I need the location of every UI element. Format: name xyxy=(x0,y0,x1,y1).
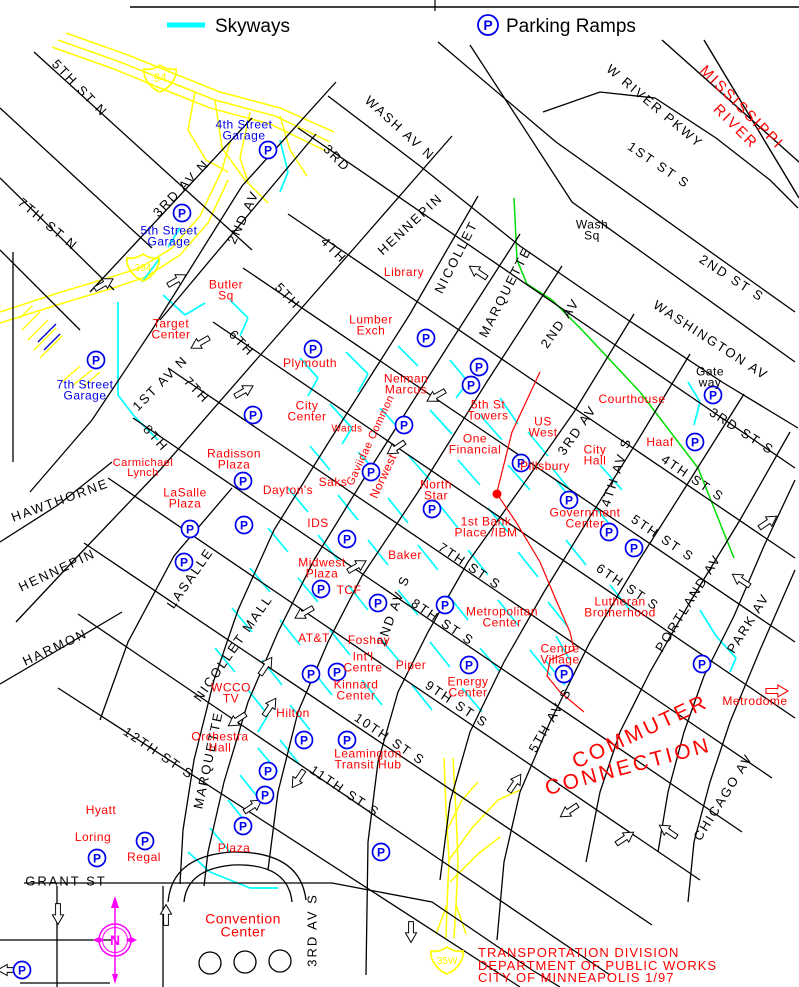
place-label: Courthouse xyxy=(598,392,665,406)
place-label: LutheranBrotherhood xyxy=(584,595,656,620)
parking-ramp-icon: P xyxy=(235,818,252,835)
place-label: Plaza xyxy=(218,841,251,855)
svg-text:N: N xyxy=(110,932,120,948)
skyway-segment xyxy=(458,460,480,485)
svg-text:P: P xyxy=(709,389,717,403)
parking-ramp-icon: P xyxy=(626,540,643,557)
place-label: 5th StTowers xyxy=(467,398,508,423)
skyway-segment xyxy=(430,642,450,667)
svg-text:94: 94 xyxy=(153,71,167,85)
place-label: MidwestPlaza xyxy=(298,556,346,581)
street-label: W RIVER PKWY xyxy=(604,61,707,151)
place-label: OneFinancial xyxy=(449,432,502,457)
freeway-line xyxy=(58,40,330,142)
parking-ramp-icon: P xyxy=(463,377,480,394)
place-label: Loring xyxy=(75,830,111,844)
street-label: 3RD ST S xyxy=(707,405,777,458)
one-way-arrow xyxy=(466,262,490,283)
map-canvas: 9439435W PPPPPPPPPPPPPPPPPPPPPPPPPPPPPPP… xyxy=(0,0,799,987)
parking-ramp-icon: P xyxy=(182,521,199,538)
street-line xyxy=(586,432,790,862)
highway-shield: 394 xyxy=(127,254,159,281)
parking-ramp-icon: P xyxy=(137,833,154,850)
street-label: NICOLLET xyxy=(431,218,480,296)
skyway-segment xyxy=(730,658,736,672)
street-label: 6TH xyxy=(226,327,258,359)
one-way-arrow xyxy=(52,904,63,925)
one-way-arrow xyxy=(613,828,637,849)
place-label: Regal xyxy=(127,850,161,864)
freeway-line xyxy=(447,782,478,830)
parking-ramp-icon: P xyxy=(461,657,478,674)
parking-ramp-icon: P xyxy=(245,407,262,424)
svg-text:P: P xyxy=(400,419,408,433)
street-label: 4TH ST S xyxy=(659,451,728,504)
parking-ramp-icon: P xyxy=(556,666,573,683)
one-way-arrow xyxy=(505,771,526,795)
parking-ramp-icon: P xyxy=(373,844,390,861)
freeway-line xyxy=(436,905,447,934)
parking-ramp-icon: P xyxy=(260,142,277,159)
compass-rose: N xyxy=(93,896,137,984)
downtown-skyway-map: 9439435W PPPPPPPPPPPPPPPPPPPPPPPPPPPPPPP… xyxy=(0,0,799,987)
parking-ramp-icon: P xyxy=(257,787,274,804)
parking-ramp-icon: P xyxy=(174,205,191,222)
place-label: RadissonPlaza xyxy=(207,447,261,472)
place-label: LeamingtonTransit Hub xyxy=(334,747,402,772)
street-label: 8TH xyxy=(140,422,172,455)
place-label: MetropolitanCenter xyxy=(466,605,538,630)
svg-text:P: P xyxy=(261,789,269,803)
one-way-arrow xyxy=(160,905,171,926)
skyways-legend-label: Skyways xyxy=(215,16,290,37)
skyway-segment xyxy=(566,540,586,565)
place-label: CityCenter xyxy=(287,399,326,424)
parking-ramp-icon: P xyxy=(313,581,330,598)
convention-arc xyxy=(168,852,306,902)
hatch-line xyxy=(28,320,48,340)
street-label: WASH AV N xyxy=(362,93,438,164)
place-label: USWest xyxy=(528,415,557,440)
street-label: 12TH ST S xyxy=(121,724,197,782)
place-label: Baker xyxy=(388,548,422,562)
parking-legend-label: Parking Ramps xyxy=(506,16,636,37)
svg-text:P: P xyxy=(141,835,149,849)
compass-rose: N xyxy=(93,896,137,984)
skyway-segment xyxy=(280,140,288,172)
one-way-arrow xyxy=(188,333,212,353)
place-label: ConventionCenter xyxy=(205,910,281,939)
one-way-arrow xyxy=(288,767,309,791)
svg-text:P: P xyxy=(264,765,272,779)
svg-text:P: P xyxy=(317,583,325,597)
parking-ramp-icon: P xyxy=(305,341,322,358)
street-label: HARMON xyxy=(20,626,90,669)
skyway-segment xyxy=(346,352,368,374)
convention-dome xyxy=(234,951,256,973)
street-label: 2ND ST S xyxy=(697,252,767,305)
skyway-segment xyxy=(430,410,452,434)
svg-text:P: P xyxy=(93,852,101,866)
svg-text:35W: 35W xyxy=(437,956,458,967)
street-label: HENNEPIN xyxy=(374,190,445,258)
parking-ramp-icon: P xyxy=(418,330,435,347)
legend: Skyways P Parking Ramps xyxy=(130,0,799,37)
area-label: WashSq xyxy=(576,218,608,243)
parking-ramp-icon: P xyxy=(236,517,253,534)
svg-text:P: P xyxy=(422,332,430,346)
skyway-segment xyxy=(210,872,250,888)
svg-text:P: P xyxy=(178,207,186,221)
one-way-arrow xyxy=(345,556,369,576)
svg-text:P: P xyxy=(483,17,492,33)
place-label: Haaf xyxy=(646,435,674,449)
place-label: Piper xyxy=(396,658,427,672)
garage-label: 4th StreetGarage xyxy=(215,118,272,143)
street-label: 5TH xyxy=(272,280,304,312)
svg-text:P: P xyxy=(630,542,638,556)
street-label: 2ND AV xyxy=(224,188,262,246)
street-label: 3RD AV S xyxy=(305,893,320,967)
svg-text:P: P xyxy=(249,409,257,423)
svg-text:P: P xyxy=(180,556,188,570)
place-label: Wards xyxy=(331,424,362,435)
convention-dome xyxy=(199,952,221,974)
place-label: CityHall xyxy=(584,443,607,468)
parking-ramp-icon: P xyxy=(88,352,105,369)
street-label: PORTLAND AV xyxy=(652,552,724,655)
svg-text:P: P xyxy=(239,820,247,834)
place-label: Hyatt xyxy=(86,803,117,817)
svg-text:P: P xyxy=(240,519,248,533)
street-label: 5TH AV S xyxy=(526,685,575,755)
one-way-arrow xyxy=(405,922,416,943)
place-label: CarmichaelLynch xyxy=(113,457,174,479)
street-label: 4TH xyxy=(318,234,350,266)
svg-text:P: P xyxy=(18,964,26,978)
skyway-segment xyxy=(398,346,418,366)
parking-ramp-icon: P xyxy=(471,359,488,376)
place-label: CentreVillage xyxy=(540,642,579,667)
street-label: 5TH ST N xyxy=(49,56,111,119)
parking-ramp-icon: P xyxy=(694,656,711,673)
parking-legend-icon: P xyxy=(478,15,498,35)
parking-ramp-icon: P xyxy=(235,473,252,490)
place-label: TCF xyxy=(337,583,362,597)
svg-text:394: 394 xyxy=(135,263,152,274)
highway-shield: 35W xyxy=(431,947,463,974)
parking-ramp-icon: P xyxy=(303,666,320,683)
svg-text:P: P xyxy=(465,659,473,673)
street-label: MARQUETTE xyxy=(476,244,535,340)
place-label: Library xyxy=(384,265,424,279)
one-way-arrow xyxy=(424,386,448,406)
svg-text:P: P xyxy=(307,668,315,682)
one-way-arrow xyxy=(756,512,780,533)
svg-text:P: P xyxy=(377,846,385,860)
skyway-segment xyxy=(268,528,288,552)
street-label: CHICAGO AV xyxy=(690,751,756,844)
street-label: 7TH xyxy=(181,374,213,406)
parking-ramp-icon: P xyxy=(424,501,441,518)
svg-text:P: P xyxy=(441,599,449,613)
parking-ramp-icon: P xyxy=(260,763,277,780)
place-label: EnergyCenter xyxy=(447,675,488,700)
hatch-line xyxy=(20,306,32,318)
place-label: KinnardCenter xyxy=(334,678,379,703)
parking-ramp-icon: P xyxy=(370,595,387,612)
area-label: Gateway xyxy=(696,365,724,390)
place-label: LaSallePlaza xyxy=(163,486,207,511)
street-label: HAWTHORNE xyxy=(9,475,111,524)
skyway-segment xyxy=(258,715,268,732)
svg-text:P: P xyxy=(691,436,699,450)
street-label: 7TH ST N xyxy=(15,195,81,254)
street-label: 7TH ST S xyxy=(436,539,505,592)
garage-label: 7th StreetGarage xyxy=(56,378,113,403)
map-credits: TRANSPORTATION DIVISION DEPARTMENT OF PU… xyxy=(478,945,717,985)
svg-text:P: P xyxy=(186,523,194,537)
svg-text:P: P xyxy=(92,354,100,368)
parking-ramp-icon: P xyxy=(89,850,106,867)
place-label: AT&T xyxy=(298,631,330,645)
skyway-segment xyxy=(185,303,205,315)
svg-text:P: P xyxy=(475,361,483,375)
place-label: IDS xyxy=(307,516,329,530)
route-origin-dot xyxy=(493,490,502,499)
place-label: Foshay xyxy=(348,633,390,647)
street-label: GRANT ST xyxy=(25,874,107,889)
svg-text:P: P xyxy=(467,379,475,393)
svg-text:P: P xyxy=(343,734,351,748)
place-label: ButlerSq xyxy=(209,278,243,303)
hatch-line xyxy=(40,336,62,358)
place-label: 1st BankPlace /IBM xyxy=(454,515,517,540)
svg-text:P: P xyxy=(698,658,706,672)
place-label: LumberExch xyxy=(349,313,393,338)
garage-label: 5th StreetGarage xyxy=(140,224,197,249)
hatch-line xyxy=(44,334,60,350)
place-label: WCCOTV xyxy=(211,681,251,706)
svg-text:P: P xyxy=(374,597,382,611)
one-way-arrow xyxy=(557,801,581,822)
place-label: NorthStar xyxy=(420,478,452,503)
svg-text:P: P xyxy=(239,475,247,489)
street-label: 5TH ST S xyxy=(629,511,698,564)
svg-text:P: P xyxy=(428,503,436,517)
place-label: TargetCenter xyxy=(151,317,190,342)
parking-ramp-icon: P xyxy=(14,962,31,979)
svg-text:P: P xyxy=(309,343,317,357)
place-label: Saks xyxy=(319,475,348,489)
skyway-segment xyxy=(694,402,700,425)
parking-ramp-icon: P xyxy=(339,531,356,548)
street-line xyxy=(0,108,152,248)
svg-text:P: P xyxy=(605,526,613,540)
place-label: Plymouth xyxy=(283,356,337,370)
convention-dome xyxy=(269,950,291,972)
place-label: NeimanMarcus xyxy=(384,372,428,397)
street-label: LASALLE xyxy=(164,545,217,611)
street-label: 1ST ST S xyxy=(625,139,693,192)
parking-ramp-icon: P xyxy=(296,732,313,749)
place-label: Dayton's xyxy=(263,483,313,497)
parking-ramp-icon: P xyxy=(687,434,704,451)
place-label: Metrodome xyxy=(722,694,787,708)
one-way-arrow xyxy=(165,270,189,290)
svg-text:P: P xyxy=(343,533,351,547)
place-label: Pillsbury xyxy=(520,459,570,473)
credits-line-3: CITY OF MINNEAPOLIS 1/97 xyxy=(478,970,674,985)
place-label: Hilton xyxy=(276,706,310,720)
svg-text:P: P xyxy=(300,734,308,748)
svg-text:P: P xyxy=(264,144,272,158)
place-label: OrchestraHall xyxy=(191,730,248,755)
street-label: HENNEPIN xyxy=(16,546,98,595)
street-label: 3RD xyxy=(320,141,353,174)
skyway-segment xyxy=(250,568,270,592)
parking-ramp-icon: P xyxy=(396,417,413,434)
skyway-segment xyxy=(700,610,716,636)
skyway-segment xyxy=(280,620,300,645)
skyway-segment xyxy=(518,552,538,577)
svg-text:P: P xyxy=(560,668,568,682)
